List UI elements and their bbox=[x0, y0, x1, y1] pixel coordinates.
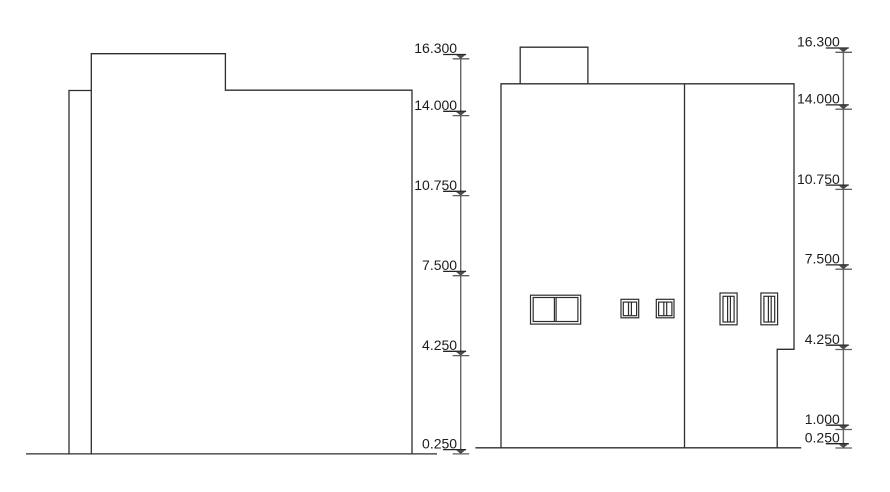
svg-text:10.750: 10.750 bbox=[414, 177, 457, 193]
svg-text:4.250: 4.250 bbox=[805, 331, 840, 347]
svg-text:0.250: 0.250 bbox=[805, 429, 840, 445]
svg-text:7.500: 7.500 bbox=[422, 257, 457, 273]
svg-text:10.750: 10.750 bbox=[797, 171, 840, 187]
svg-text:0.250: 0.250 bbox=[422, 435, 457, 451]
svg-text:1.000: 1.000 bbox=[805, 411, 840, 427]
svg-text:16.300: 16.300 bbox=[414, 40, 457, 56]
svg-text:14.000: 14.000 bbox=[797, 91, 840, 107]
svg-text:7.500: 7.500 bbox=[805, 251, 840, 267]
svg-text:4.250: 4.250 bbox=[422, 337, 457, 353]
svg-text:16.300: 16.300 bbox=[797, 34, 840, 50]
svg-text:14.000: 14.000 bbox=[414, 97, 457, 113]
